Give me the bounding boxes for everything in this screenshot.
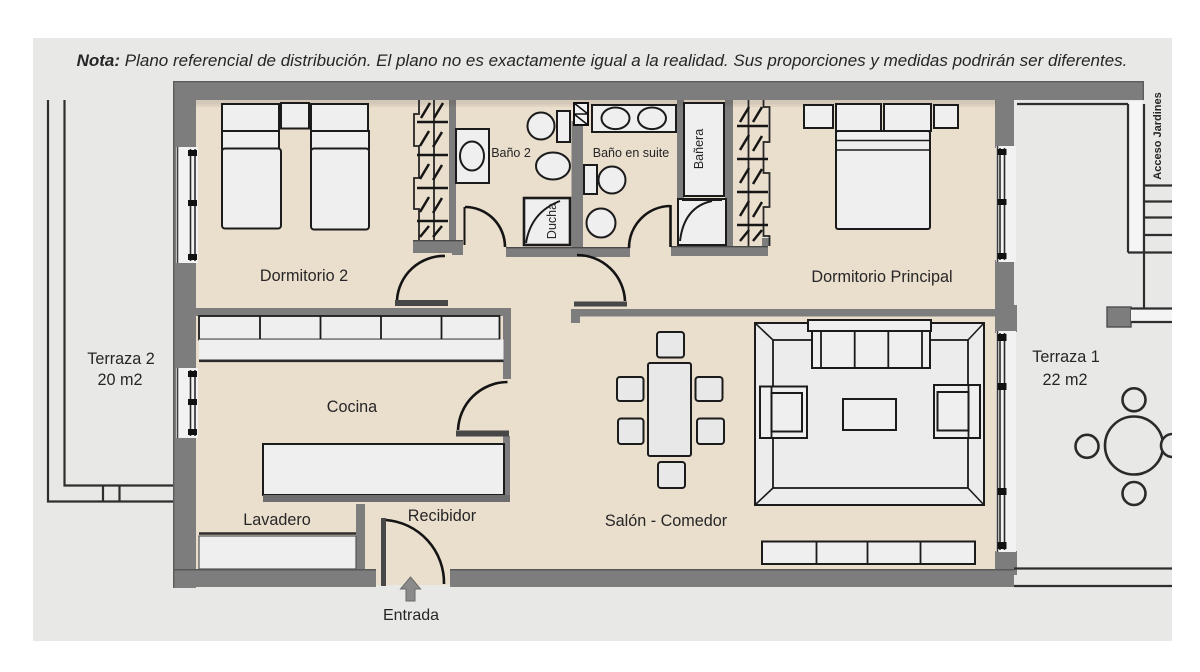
svg-text:Dormitorio Principal: Dormitorio Principal: [811, 268, 952, 286]
svg-text:22 m2: 22 m2: [1043, 371, 1088, 389]
svg-text:Cocina: Cocina: [327, 398, 377, 416]
svg-text:Bañera: Bañera: [692, 129, 706, 169]
svg-text:Baño en suite: Baño en suite: [593, 146, 669, 160]
svg-text:Baño 2: Baño 2: [491, 146, 531, 160]
svg-text:Acceso Jardines: Acceso Jardines: [1152, 92, 1164, 179]
svg-text:Entrada: Entrada: [383, 607, 439, 624]
svg-text:Salón - Comedor: Salón - Comedor: [605, 512, 728, 530]
svg-text:Ducha: Ducha: [545, 203, 559, 239]
svg-text:Recibidor: Recibidor: [408, 507, 477, 525]
svg-text:Nota: Plano referencial de dis: Nota: Plano referencial de distribución.…: [77, 51, 1128, 70]
svg-text:Dormitorio 2: Dormitorio 2: [260, 267, 348, 285]
svg-text:Terraza 1: Terraza 1: [1032, 348, 1099, 366]
svg-text:Terraza 2: Terraza 2: [87, 350, 154, 368]
svg-text:Lavadero: Lavadero: [243, 511, 311, 529]
svg-text:20 m2: 20 m2: [98, 371, 143, 389]
